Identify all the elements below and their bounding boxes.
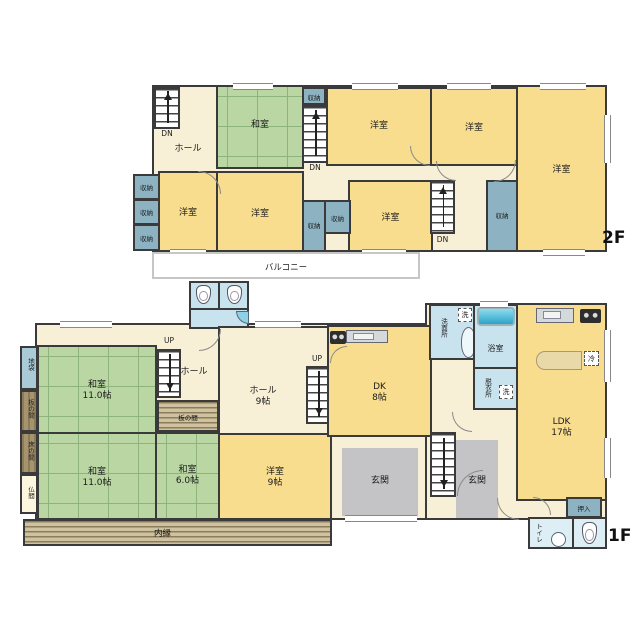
closet-label: 収納 <box>304 222 324 230</box>
closet-2f-left-1: 収納 <box>133 174 160 200</box>
fridge-label: 冷 <box>588 354 595 364</box>
washer-label: 洗 <box>503 387 510 397</box>
alcove-tokonoma: 床の間 <box>20 432 38 474</box>
washer-label: 洗 <box>462 310 469 320</box>
genkan-label: 玄関 <box>342 476 418 487</box>
room-label-yoshitsu: 洋室 <box>518 165 605 176</box>
closet-2f-right: 収納 <box>486 180 518 252</box>
butsuma-label: 仏間 <box>27 486 34 499</box>
window <box>540 83 586 90</box>
stairs-dn-label: DN <box>154 129 180 138</box>
alcove-butsuma: 仏間 <box>20 474 38 514</box>
kitchen-sink-icon <box>346 330 388 343</box>
room-size: 9帖 <box>222 397 304 408</box>
room-size: 11.0帖 <box>39 478 155 489</box>
room-label: 和室 <box>39 467 155 478</box>
closet-label: 収納 <box>135 209 158 217</box>
window <box>480 301 508 308</box>
stairs-up-label: UP <box>157 336 181 345</box>
alcove-jibukuro: 地袋 <box>20 346 38 390</box>
stair-arrow-down <box>318 371 320 416</box>
room-label: LDK <box>518 417 605 428</box>
stove-icon <box>580 309 601 323</box>
room-washitsu-11-bottom: 和室 11.0帖 <box>37 432 157 520</box>
room-size: 11.0帖 <box>39 391 155 402</box>
fridge-icon: 冷 <box>584 351 599 366</box>
washer-icon: 洗 <box>458 308 472 322</box>
room-label-yoshitsu: 洋室 <box>432 123 516 134</box>
room-label-yoshitsu: 洋室 <box>350 213 431 224</box>
room-washitsu-11-top: 和室 11.0帖 <box>37 345 157 434</box>
room-ldk: LDK 17帖 <box>516 303 607 501</box>
floor1-label: 1F <box>608 526 631 546</box>
room-toilet-1f: トイレ <box>528 517 574 549</box>
room-washitsu-2f: 和室 <box>216 85 304 169</box>
genkan-main: 玄関 <box>342 448 418 516</box>
room-yoshitsu-2f-top2: 洋室 <box>430 87 518 166</box>
toilet-label: トイレ <box>535 523 542 543</box>
window <box>604 330 611 382</box>
closet-2f-left-3: 収納 <box>133 224 160 251</box>
floor-plan-canvas: { "floor2": { "label": "2F", "hall": "ホー… <box>0 0 640 640</box>
window <box>352 83 398 90</box>
window <box>233 83 273 90</box>
room-label-hall-1f: ホール <box>172 364 216 377</box>
bathtub-icon <box>477 307 515 326</box>
closet-2f-top: 収納 <box>302 87 326 105</box>
room-size: 6.0帖 <box>157 476 218 487</box>
closet-label: 収納 <box>135 184 158 192</box>
window <box>447 83 491 90</box>
stairs-dn-label: DN <box>302 163 328 172</box>
closet-2f-mid-2: 収納 <box>324 200 351 234</box>
stair-arrow-up <box>315 110 317 155</box>
tokonoma-label: 床の間 <box>27 441 34 461</box>
stair-arrow-up <box>443 185 445 227</box>
closet-2f-left-2: 収納 <box>133 199 160 225</box>
washer-icon: 洗 <box>499 385 513 399</box>
senmenjo-label: 洗面所 <box>440 318 447 338</box>
floor2-label: 2F <box>602 228 625 248</box>
stairs-dn-label: DN <box>430 235 455 244</box>
stair-arrow-down <box>443 438 445 489</box>
stair-arrow-up <box>167 91 169 123</box>
room-yoshitsu-2f-bottom2: 洋室 <box>216 171 304 252</box>
oshiire-label: 押入 <box>568 505 600 513</box>
closet-oshiire: 押入 <box>566 497 602 518</box>
room-label-yoshitsu: 洋室 <box>218 209 302 220</box>
room-label: 和室 <box>157 465 218 476</box>
room-label-hall-2f: ホール <box>166 141 210 154</box>
room-size: 17帖 <box>518 428 605 439</box>
closet-2f-mid-1: 収納 <box>302 200 326 252</box>
balcony-2f: バルコニー <box>152 252 420 279</box>
room-size: 9帖 <box>220 478 330 489</box>
room-yoshitsu-2f-bottom3: 洋室 <box>348 180 433 252</box>
uchien-label: 内縁 <box>25 529 300 540</box>
room-label-washitsu-2f: 和室 <box>218 120 302 131</box>
stairs-2f-middle <box>302 105 328 163</box>
window <box>604 115 611 163</box>
room-label: 洋室 <box>220 467 330 478</box>
room-label: 和室 <box>39 380 155 391</box>
window <box>60 321 112 328</box>
closet-label: 収納 <box>304 94 324 102</box>
veranda-uchien: 内縁 <box>23 519 332 546</box>
yokushitsu-label: 浴室 <box>475 344 516 354</box>
closet-label: 収納 <box>488 212 516 220</box>
kitchen-sink-icon <box>536 308 574 323</box>
room-yoshitsu9: 洋室 9帖 <box>218 433 332 520</box>
stove-icon <box>330 331 346 344</box>
sink-icon <box>551 532 566 547</box>
kitchen-counter <box>536 351 582 370</box>
datsuijo-label: 脱衣所 <box>484 378 491 398</box>
room-yoshitsu-2f-right: 洋室 <box>516 85 607 252</box>
room-label-yoshitsu: 洋室 <box>328 121 430 132</box>
jibukuro-label: 地袋 <box>27 358 34 371</box>
room-size: 8帖 <box>329 393 430 404</box>
room-label-yoshitsu: 洋室 <box>160 208 216 219</box>
room-washitsu-6: 和室 6.0帖 <box>155 432 220 520</box>
window <box>604 438 611 478</box>
itanoma-label: 板の間 <box>27 399 34 419</box>
alcove-itanoma-left: 板の間 <box>20 390 38 432</box>
closet-label: 収納 <box>135 235 158 243</box>
stairs-2f-topleft <box>154 87 180 129</box>
window <box>543 249 585 256</box>
itanoma-label: 板の間 <box>159 414 217 422</box>
stairs-2f-right <box>430 180 455 234</box>
stairs-1f-genkan <box>430 432 456 497</box>
room-label: ホール <box>222 386 304 397</box>
balcony-label: バルコニー <box>154 263 418 274</box>
room-label: DK <box>329 382 430 393</box>
stair-arrow-down <box>169 354 171 392</box>
window <box>345 515 417 522</box>
window <box>255 321 301 328</box>
closet-label: 収納 <box>326 215 349 223</box>
itanoma-middle: 板の間 <box>157 400 219 432</box>
